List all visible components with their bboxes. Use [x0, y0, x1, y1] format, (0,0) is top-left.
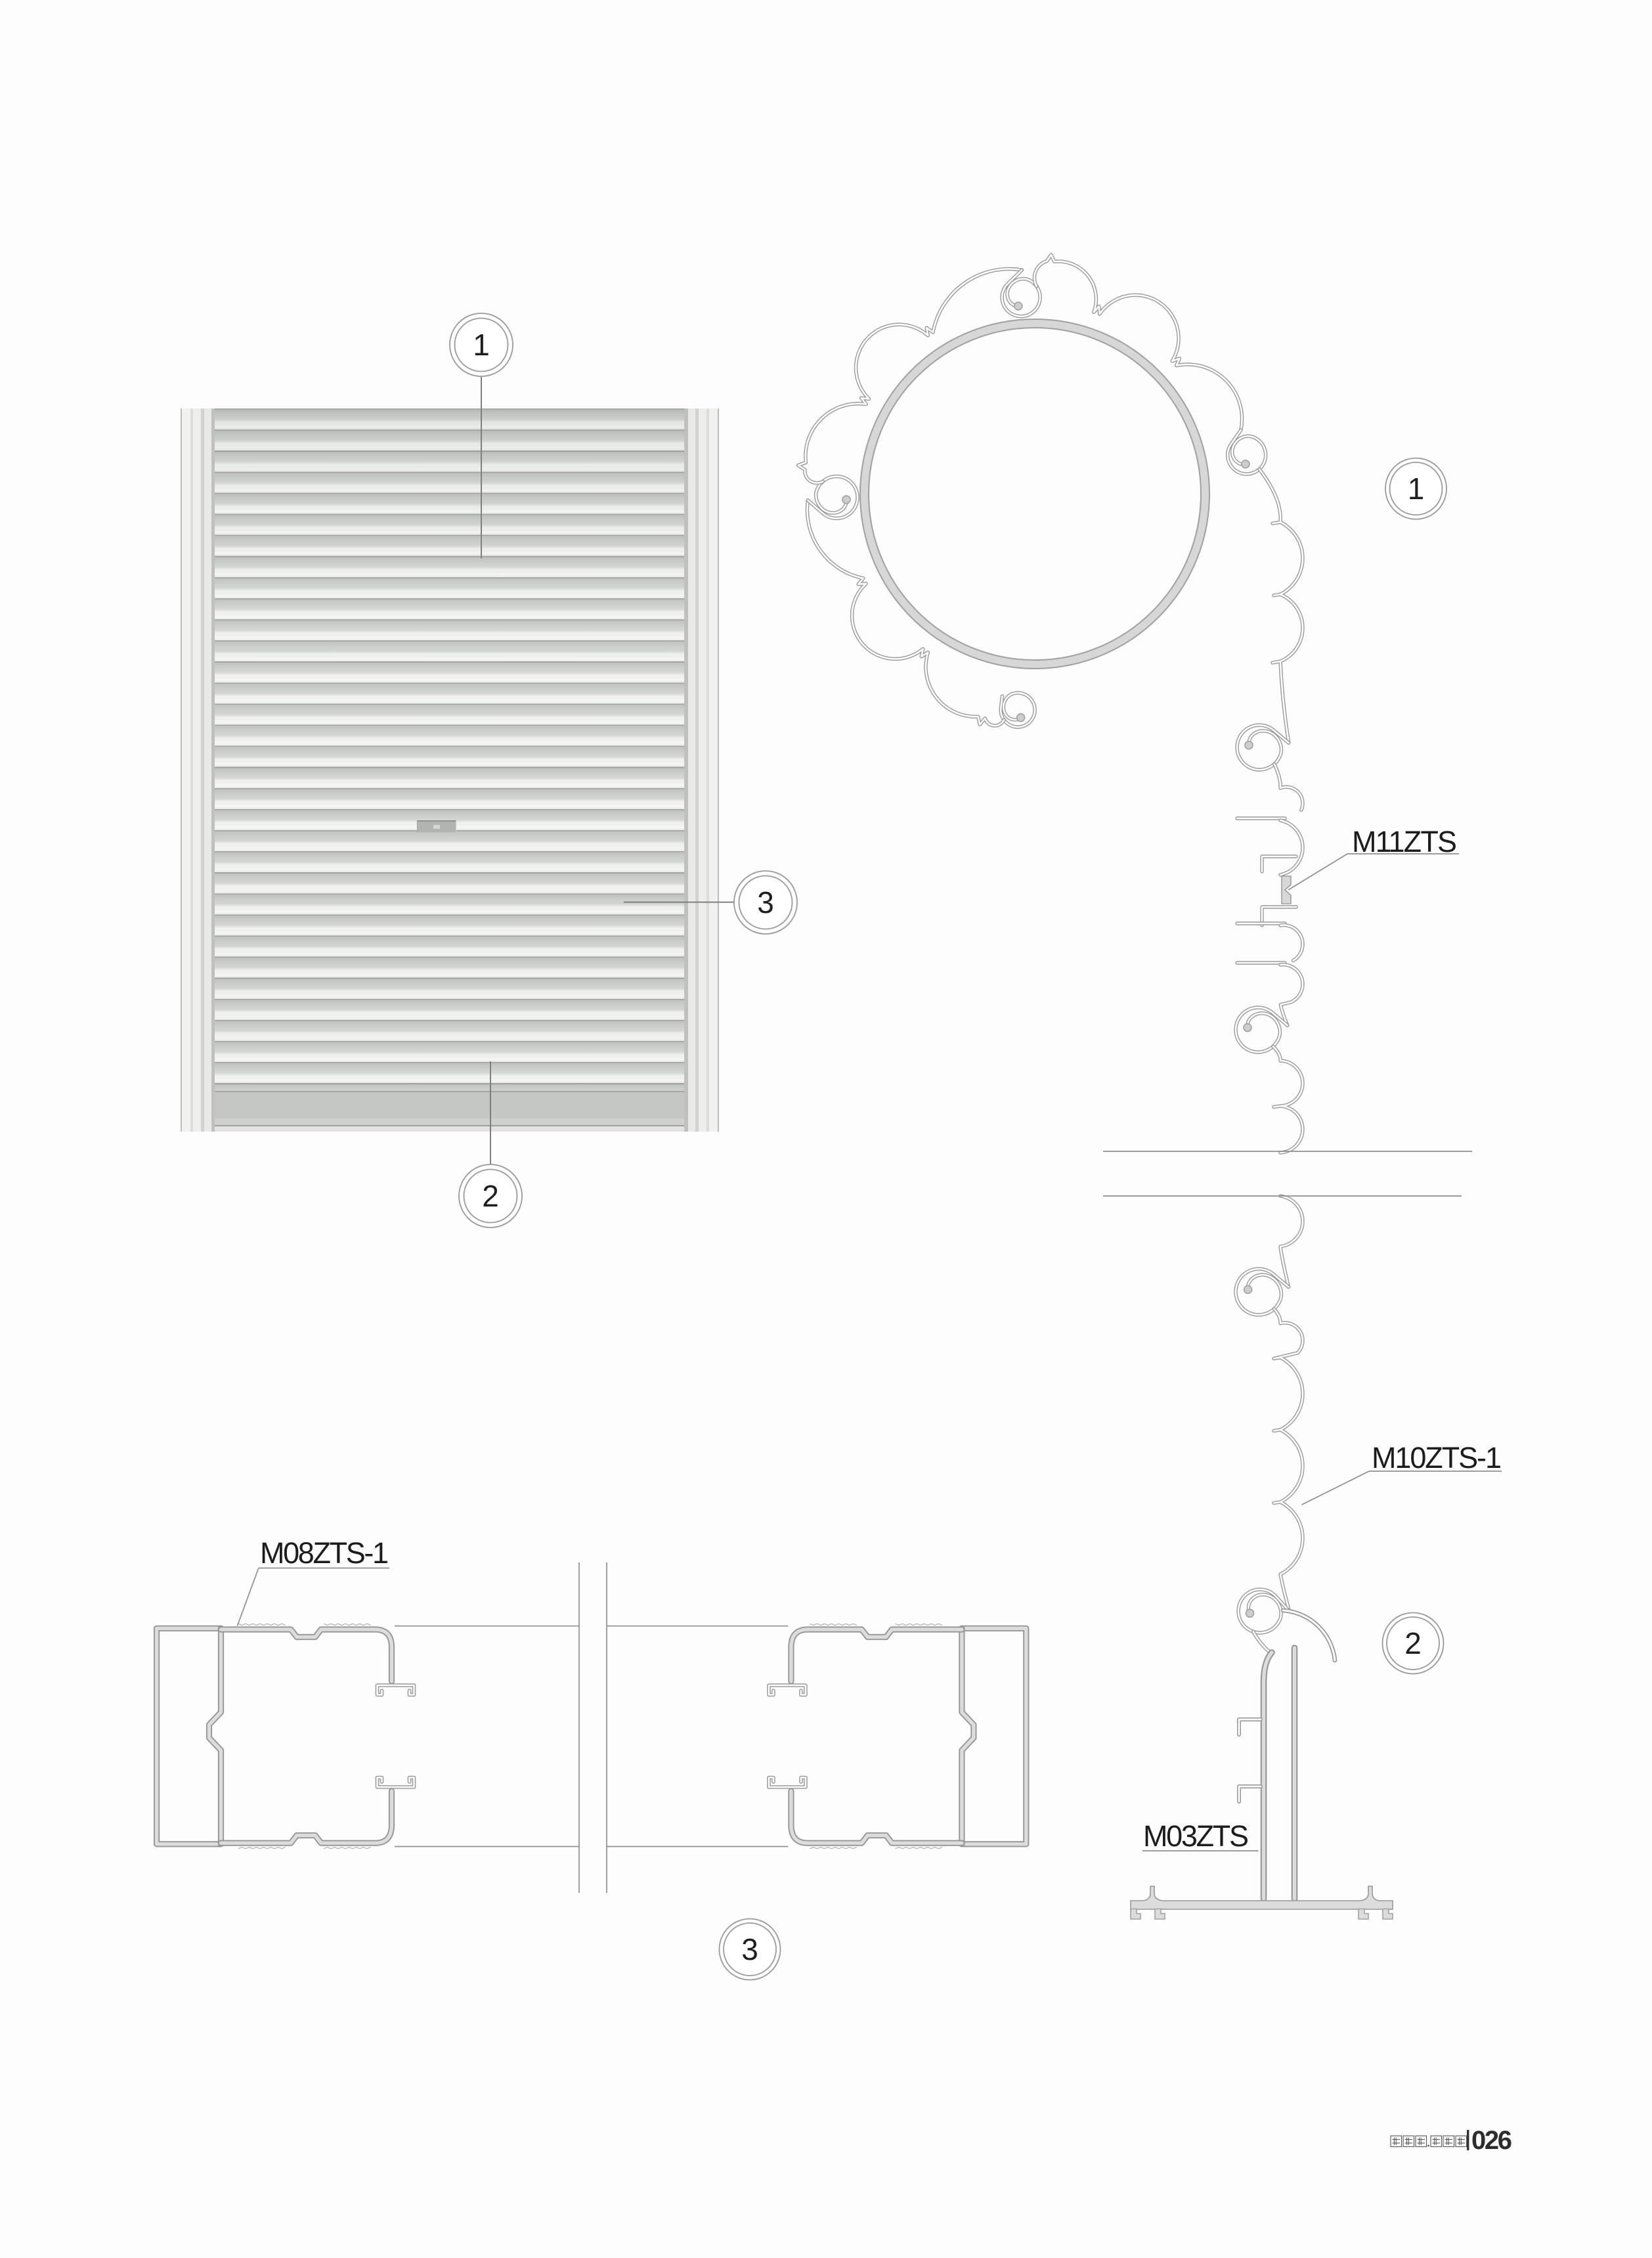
svg-text:M08ZTS-1: M08ZTS-1 [260, 1536, 389, 1570]
svg-text:1: 1 [473, 328, 490, 362]
svg-text:1: 1 [1408, 472, 1425, 506]
svg-text:2: 2 [1404, 1626, 1422, 1660]
svg-text:3: 3 [741, 1932, 758, 1966]
svg-text:026: 026 [1471, 2126, 1512, 2155]
svg-text:M10ZTS-1: M10ZTS-1 [1372, 1441, 1502, 1474]
svg-text:3: 3 [757, 885, 774, 919]
svg-text:M03ZTS: M03ZTS [1143, 1819, 1249, 1853]
svg-text:M11ZTS: M11ZTS [1352, 825, 1457, 858]
svg-text:2: 2 [482, 1179, 499, 1213]
